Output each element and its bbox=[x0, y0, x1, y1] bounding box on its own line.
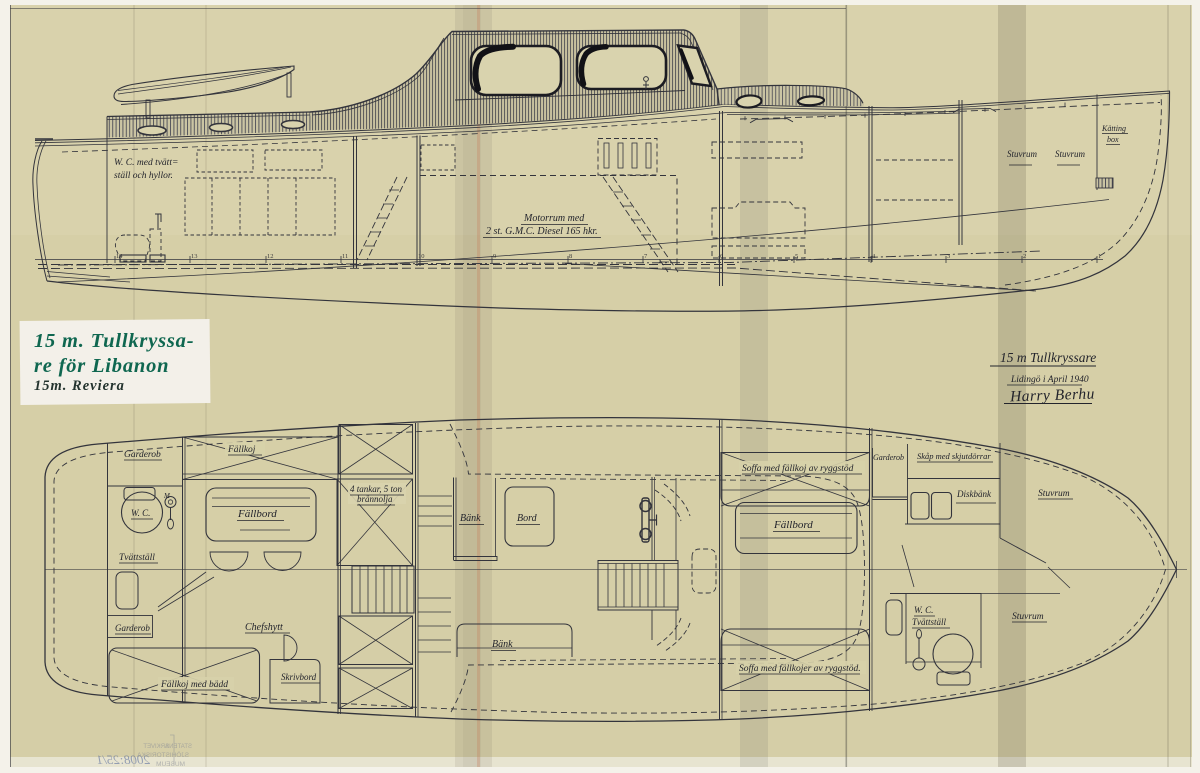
svg-text:box: box bbox=[1107, 135, 1119, 144]
svg-text:3: 3 bbox=[947, 253, 950, 260]
svg-text:Bord: Bord bbox=[517, 513, 538, 524]
svg-text:W. C.: W. C. bbox=[131, 508, 150, 518]
svg-text:Stuvrum: Stuvrum bbox=[1007, 149, 1037, 159]
svg-text:W. C. med tvätt=: W. C. med tvätt= bbox=[114, 158, 178, 168]
svg-text:Stuvrum: Stuvrum bbox=[1055, 149, 1085, 159]
svg-text:Skåp med skjutdörrar: Skåp med skjutdörrar bbox=[917, 451, 991, 461]
svg-text:Skrivbord: Skrivbord bbox=[281, 672, 317, 682]
svg-text:2008:25/1: 2008:25/1 bbox=[97, 752, 150, 767]
svg-text:Stuvrum: Stuvrum bbox=[1012, 612, 1044, 622]
svg-text:Fällbord: Fällbord bbox=[773, 519, 813, 531]
svg-text:15m. Reviera: 15m. Reviera bbox=[34, 378, 125, 394]
svg-text:11: 11 bbox=[342, 253, 348, 260]
svg-text:Stuvrum: Stuvrum bbox=[1038, 489, 1070, 499]
svg-text:13: 13 bbox=[191, 253, 198, 260]
svg-text:8: 8 bbox=[569, 253, 572, 260]
svg-text:9: 9 bbox=[493, 253, 496, 260]
svg-text:5: 5 bbox=[795, 253, 798, 260]
svg-text:STATENS: STATENS bbox=[165, 744, 192, 750]
svg-text:10: 10 bbox=[418, 253, 425, 260]
svg-text:1: 1 bbox=[1098, 253, 1101, 260]
svg-text:15 m Tullkryssare: 15 m Tullkryssare bbox=[1000, 350, 1096, 365]
svg-text:Soffa med fällkojer av ryggstö: Soffa med fällkojer av ryggstöd. bbox=[739, 663, 861, 674]
svg-text:M: M bbox=[163, 492, 171, 500]
svg-text:Bänk: Bänk bbox=[460, 513, 481, 524]
svg-text:14: 14 bbox=[116, 253, 123, 260]
svg-text:Kätting: Kätting bbox=[1101, 124, 1126, 133]
svg-text:Bänk: Bänk bbox=[492, 639, 513, 650]
svg-text:Garderob: Garderob bbox=[124, 450, 161, 460]
svg-text:ARKIVET: ARKIVET bbox=[143, 744, 169, 750]
svg-text:Chefshytt: Chefshytt bbox=[245, 622, 283, 633]
svg-text:Diskbänk: Diskbänk bbox=[956, 489, 992, 499]
svg-text:ställ och hyllor.: ställ och hyllor. bbox=[114, 171, 173, 181]
svg-text:Garderob: Garderob bbox=[115, 623, 150, 633]
svg-text:2 st. G.M.C. Diesel 165 hkr.: 2 st. G.M.C. Diesel 165 hkr. bbox=[486, 226, 598, 237]
svg-text:12: 12 bbox=[267, 253, 274, 260]
svg-text:MUSEUM: MUSEUM bbox=[156, 761, 185, 768]
svg-text:Soffa med fällkoj av ryggstöd: Soffa med fällkoj av ryggstöd bbox=[742, 463, 854, 474]
svg-text:Tvättställ: Tvättställ bbox=[119, 553, 155, 563]
svg-text:re för Libanon: re för Libanon bbox=[34, 355, 169, 377]
svg-text:Fällkoj: Fällkoj bbox=[227, 445, 256, 455]
svg-text:Harry Berhu: Harry Berhu bbox=[1009, 385, 1095, 405]
svg-text:Garderob: Garderob bbox=[873, 453, 904, 462]
svg-text:Motorrum med: Motorrum med bbox=[523, 213, 585, 224]
svg-text:15 m. Tullkryssa-: 15 m. Tullkryssa- bbox=[34, 330, 194, 352]
svg-text:brännolja: brännolja bbox=[357, 494, 393, 504]
svg-text:Tvättställ: Tvättställ bbox=[912, 617, 947, 627]
svg-text:Lidingö i April 1940: Lidingö i April 1940 bbox=[1010, 375, 1089, 385]
svg-text:Fällbord: Fällbord bbox=[237, 508, 277, 520]
svg-text:4 tankar, 5 ton: 4 tankar, 5 ton bbox=[350, 484, 403, 494]
svg-text:Fällkoj med bädd: Fällkoj med bädd bbox=[160, 680, 228, 690]
svg-text:W. C.: W. C. bbox=[914, 605, 933, 615]
svg-text:2: 2 bbox=[1023, 253, 1026, 260]
